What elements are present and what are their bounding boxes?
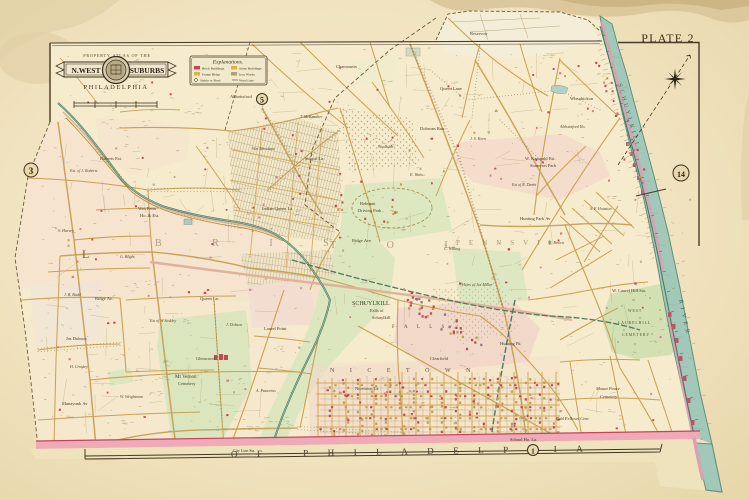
svg-text:Nicetown La.: Nicetown La. [355, 386, 380, 391]
svg-text:Odd Fellows Cem.: Odd Fellows Cem. [556, 416, 590, 421]
svg-text:Roberts Est.: Roberts Est. [100, 156, 122, 161]
svg-text:B R I S: B R I S [155, 238, 353, 249]
svg-text:SUBURBS: SUBURBS [130, 66, 165, 75]
svg-text:Hunting Park Av: Hunting Park Av [520, 216, 551, 221]
svg-text:G. Blight: G. Blight [120, 254, 136, 259]
svg-text:Somerset Park: Somerset Park [530, 163, 557, 168]
svg-text:J. Dobson: J. Dobson [226, 322, 242, 327]
svg-text:Woodside: Woodside [378, 144, 394, 149]
svg-text:Chamounix: Chamounix [336, 64, 358, 69]
svg-text:Ho. & Est.: Ho. & Est. [140, 213, 159, 218]
svg-text:L A U R E L H I L L: L A U R E L H I L L [618, 321, 651, 325]
svg-text:Explanations.: Explanations. [212, 60, 243, 66]
svg-text:Stone Buildings: Stone Buildings [239, 67, 262, 71]
svg-text:1: 1 [531, 448, 535, 456]
svg-text:Wissahickon: Wissahickon [570, 96, 594, 101]
svg-text:5: 5 [260, 96, 264, 105]
svg-text:PENNSVIL: PENNSVIL [456, 239, 562, 247]
svg-text:Est. of J. Roberts: Est. of J. Roberts [69, 168, 98, 173]
svg-text:Schuylkill: Schuylkill [372, 315, 391, 320]
svg-text:PLATE 2: PLATE 2 [641, 31, 694, 45]
svg-text:Est of R. Davis: Est of R. Davis [511, 182, 536, 187]
svg-text:C E M E T E R Y: C E M E T E R Y [622, 333, 649, 337]
svg-text:Manayunk Av: Manayunk Av [62, 401, 88, 406]
svg-text:Laurel Point: Laurel Point [264, 326, 287, 331]
svg-text:J. B. Budd: J. B. Budd [64, 292, 82, 297]
svg-text:Hunting Pk: Hunting Pk [500, 341, 521, 346]
svg-text:F A L L S: F A L L S [392, 325, 448, 330]
svg-text:Heirs of Jos Miller: Heirs of Jos Miller [461, 282, 493, 287]
svg-text:Iron Works: Iron Works [239, 73, 255, 77]
svg-text:Cemetery: Cemetery [600, 394, 617, 399]
svg-text:T. McKaraher: T. McKaraher [300, 114, 323, 119]
svg-text:Ridge Ave: Ridge Ave [352, 238, 371, 243]
svg-text:14: 14 [677, 170, 685, 179]
svg-text:City Line Sta.: City Line Sta. [233, 448, 255, 453]
svg-text:W E S T: W E S T [628, 309, 642, 313]
svg-text:H. Croskey: H. Croskey [69, 364, 88, 369]
svg-text:Indian Queen La.: Indian Queen La. [262, 206, 293, 211]
svg-text:Ward Line: Ward Line [239, 79, 254, 83]
svg-text:E. Waln: E. Waln [409, 172, 423, 177]
svg-text:A. Pastorius: A. Pastorius [255, 388, 276, 393]
svg-text:Mount Peace: Mount Peace [595, 386, 620, 391]
svg-text:Queen La.: Queen La. [200, 296, 219, 301]
svg-text:Dobsons Run: Dobsons Run [420, 126, 445, 131]
svg-text:Driving Park: Driving Park [358, 208, 382, 213]
svg-text:School Ho. La.: School Ho. La. [510, 437, 537, 442]
svg-text:SCHUYLKILL: SCHUYLKILL [352, 301, 390, 307]
svg-text:Belmont: Belmont [360, 201, 376, 206]
svg-text:S. F. Houston: S. F. Houston [590, 206, 611, 211]
svg-text:W. Laurel Hill Sta.: W. Laurel Hill Sta. [612, 288, 646, 293]
svg-text:L: L [82, 247, 89, 261]
svg-text:N I C E T O W N: N I C E T O W N [330, 368, 478, 374]
svg-text:Jas Dobson: Jas Dobson [66, 336, 87, 341]
svg-text:Cemetery: Cemetery [178, 381, 196, 386]
svg-text:Clearfield: Clearfield [430, 356, 449, 361]
svg-text:W. Kampahl Est.: W. Kampahl Est. [525, 156, 556, 161]
svg-text:PHILADELPHIA: PHILADELPHIA [84, 84, 149, 91]
svg-text:Wm Penn: Wm Penn [138, 206, 157, 211]
svg-text:Reservoir: Reservoir [470, 31, 488, 36]
svg-text:Abbottsford: Abbottsford [230, 94, 252, 99]
svg-text:3: 3 [29, 166, 34, 176]
svg-text:Mt Vernon: Mt Vernon [175, 375, 197, 380]
svg-text:Wm Merchant: Wm Merchant [252, 146, 276, 151]
svg-text:J. S. Keen: J. S. Keen [470, 136, 486, 141]
svg-text:Falls of: Falls of [370, 308, 384, 313]
svg-text:Stable or Shed: Stable or Shed [200, 79, 221, 83]
svg-text:Est of W Stokley: Est of W Stokley [149, 318, 176, 323]
svg-text:Brick Buildings: Brick Buildings [202, 67, 225, 71]
svg-text:School La.: School La. [305, 156, 325, 161]
svg-text:Queen Lane: Queen Lane [440, 86, 462, 91]
svg-text:Frame Bldgs: Frame Bldgs [202, 73, 221, 77]
svg-text:N.WEST: N.WEST [72, 66, 101, 75]
svg-text:Ridge Av.: Ridge Av. [95, 296, 113, 301]
svg-text:S. Harvey: S. Harvey [58, 228, 74, 233]
svg-text:W. Weightman: W. Weightman [120, 394, 143, 399]
svg-text:Glenwood: Glenwood [196, 356, 215, 361]
svg-text:Abbottsford Ho.: Abbottsford Ho. [559, 124, 586, 129]
